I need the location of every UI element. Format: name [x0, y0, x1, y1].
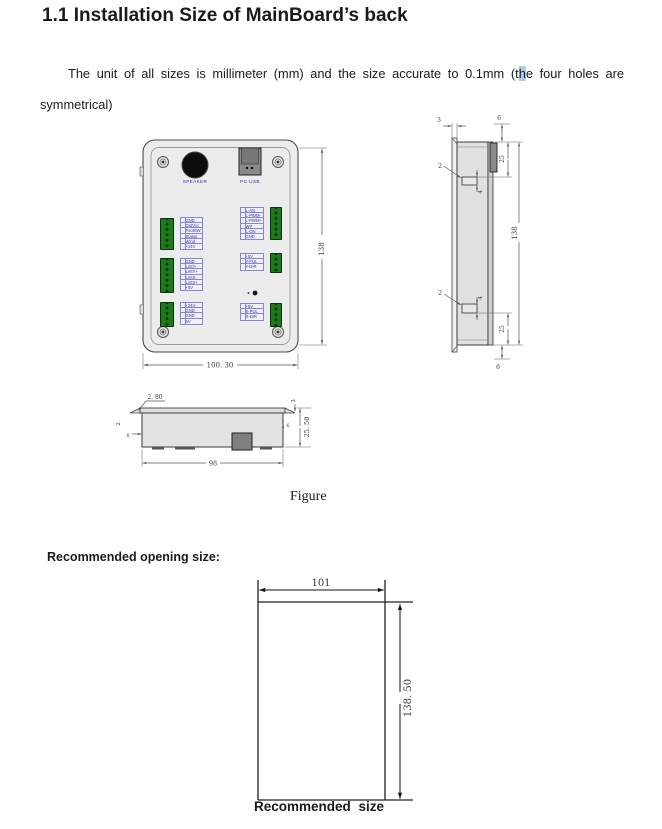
pin-table: L-ANL-PWM-L-PWM+WPL-ONGND: [240, 207, 264, 240]
opening-width-dim: 101: [311, 578, 330, 589]
side-dim-tab-lower-h: 4: [478, 296, 484, 300]
screw-icon: [273, 157, 284, 168]
bottom-dim-left-inner: 6: [126, 433, 129, 439]
bottom-dim-left-small: 2: [116, 422, 122, 426]
panel-side-tab: [140, 305, 144, 314]
bottom-dim-right-inner: 6: [286, 423, 289, 429]
pin-table: +5VX-PULX-DIR: [240, 303, 264, 321]
foot: [260, 447, 272, 450]
foot: [152, 447, 164, 450]
pin-label: 5V: [181, 319, 202, 324]
side-dim-tab-upper: 2: [438, 163, 442, 170]
bottom-dim-depth: 25. 50: [303, 417, 311, 438]
pin-label: +24V: [181, 244, 202, 249]
front-width-dim: 100. 30: [207, 362, 234, 370]
foot: [175, 447, 195, 450]
bottom-view-drawing: 2. 80 3 25. 50 6 6 2 98: [108, 388, 323, 476]
intro-text: e four holes are: [526, 66, 624, 81]
intro-text: The unit of all sizes is millimeter (mm)…: [68, 66, 519, 81]
bottom-body: [142, 413, 283, 447]
terminal-block-left-1: [160, 218, 174, 250]
screw-icon: [158, 327, 169, 338]
opening-diagram: 101 138. 50: [235, 572, 435, 824]
recommended-caption: Recommended size: [254, 799, 384, 814]
pin-table: +5VY-PULY-DIR: [240, 253, 264, 271]
side-dim-tab-lower: 2: [438, 290, 442, 297]
pin-label: Y-DIR: [241, 264, 263, 269]
side-dim-total: 138: [511, 226, 519, 239]
bottom-dim-lip: 2. 80: [147, 394, 162, 401]
intro-line-1: The unit of all sizes is millimeter (mm)…: [40, 58, 624, 89]
side-dim-lower: 25: [499, 325, 506, 333]
terminal-block-right-1: [270, 207, 282, 240]
pin-label: GND: [241, 234, 263, 239]
front-lip: [452, 138, 457, 352]
side-body: [457, 142, 488, 345]
speaker-label: SPEAKER: [183, 179, 208, 184]
side-dim-bottom: 6: [496, 364, 500, 371]
pin-table: GNDLmtY-LmtY+LmtX-LmtX++5V: [180, 258, 203, 291]
terminal-block-left-3: [160, 302, 174, 327]
opening-drawing: 101 138. 50: [235, 572, 435, 824]
side-dim-top: 6: [497, 115, 501, 122]
side-dim-lip: 3: [437, 117, 441, 124]
led-label-mark: [248, 292, 250, 294]
speaker-icon: [182, 152, 208, 178]
usb-label: PC-USB: [240, 179, 260, 184]
figure-caption: Figure: [290, 489, 327, 505]
terminal-block-right-2: [270, 253, 282, 273]
mount-tab-lower: [462, 304, 477, 313]
front-view-figure: SPEAKER PC-USB 138 100. 30 GNDOutVccFoot…: [115, 135, 350, 385]
usb-connector: [239, 148, 261, 175]
screw-icon: [158, 157, 169, 168]
page-title: 1.1 Installation Size of MainBoard’s bac…: [42, 5, 408, 27]
document-page: 1.1 Installation Size of MainBoard’s bac…: [0, 0, 662, 829]
bottom-view-figure: 2. 80 3 25. 50 6 6 2 98: [108, 388, 323, 476]
bottom-dim-right-small: 3: [291, 399, 297, 403]
terminal-block-right-3: [270, 303, 282, 327]
pin-label: X-DIR: [241, 314, 263, 319]
bottom-lip: [140, 408, 285, 413]
recommended-heading: Recommended opening size:: [47, 550, 220, 564]
usb-bottom: [232, 433, 252, 450]
pin-label: +5V: [181, 285, 202, 290]
led-dot: [253, 291, 258, 296]
pin-table: +24VGNDGND5V: [180, 302, 203, 325]
side-view-figure: 3 6 25 138 2 4 2 4: [432, 108, 542, 380]
screw-icon: [273, 327, 284, 338]
pin-table: GNDOutVccFootSWStatusWind+24V: [180, 217, 203, 250]
panel-side-tab: [140, 167, 144, 176]
lip-end-right: [285, 408, 295, 413]
mount-tab-upper: [462, 177, 477, 185]
side-view-drawing: 3 6 25 138 2 4 2 4: [432, 108, 542, 380]
terminal-block-left-2: [160, 258, 174, 293]
usb-side: [490, 143, 497, 172]
bottom-dim-width: 98: [209, 460, 217, 468]
front-view-drawing: SPEAKER PC-USB 138 100. 30: [115, 135, 350, 385]
side-dim-tab-upper-h: 4: [478, 190, 484, 194]
front-height-dim: 138: [318, 242, 326, 255]
side-dim-upper: 25: [499, 155, 506, 163]
opening-height-dim: 138. 50: [403, 679, 414, 717]
intro-highlight: h: [519, 66, 526, 81]
